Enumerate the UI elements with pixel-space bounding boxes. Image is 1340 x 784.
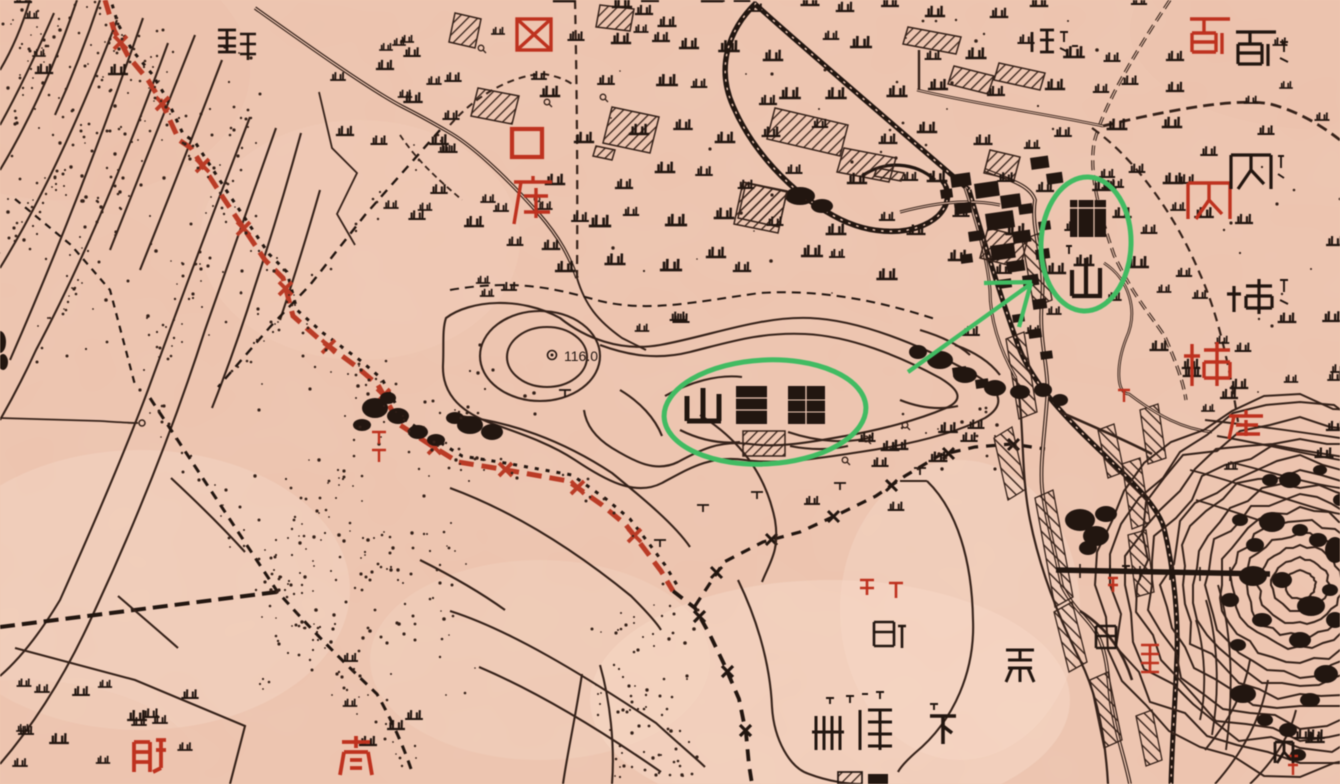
svg-text:116.0: 116.0 (564, 348, 598, 364)
